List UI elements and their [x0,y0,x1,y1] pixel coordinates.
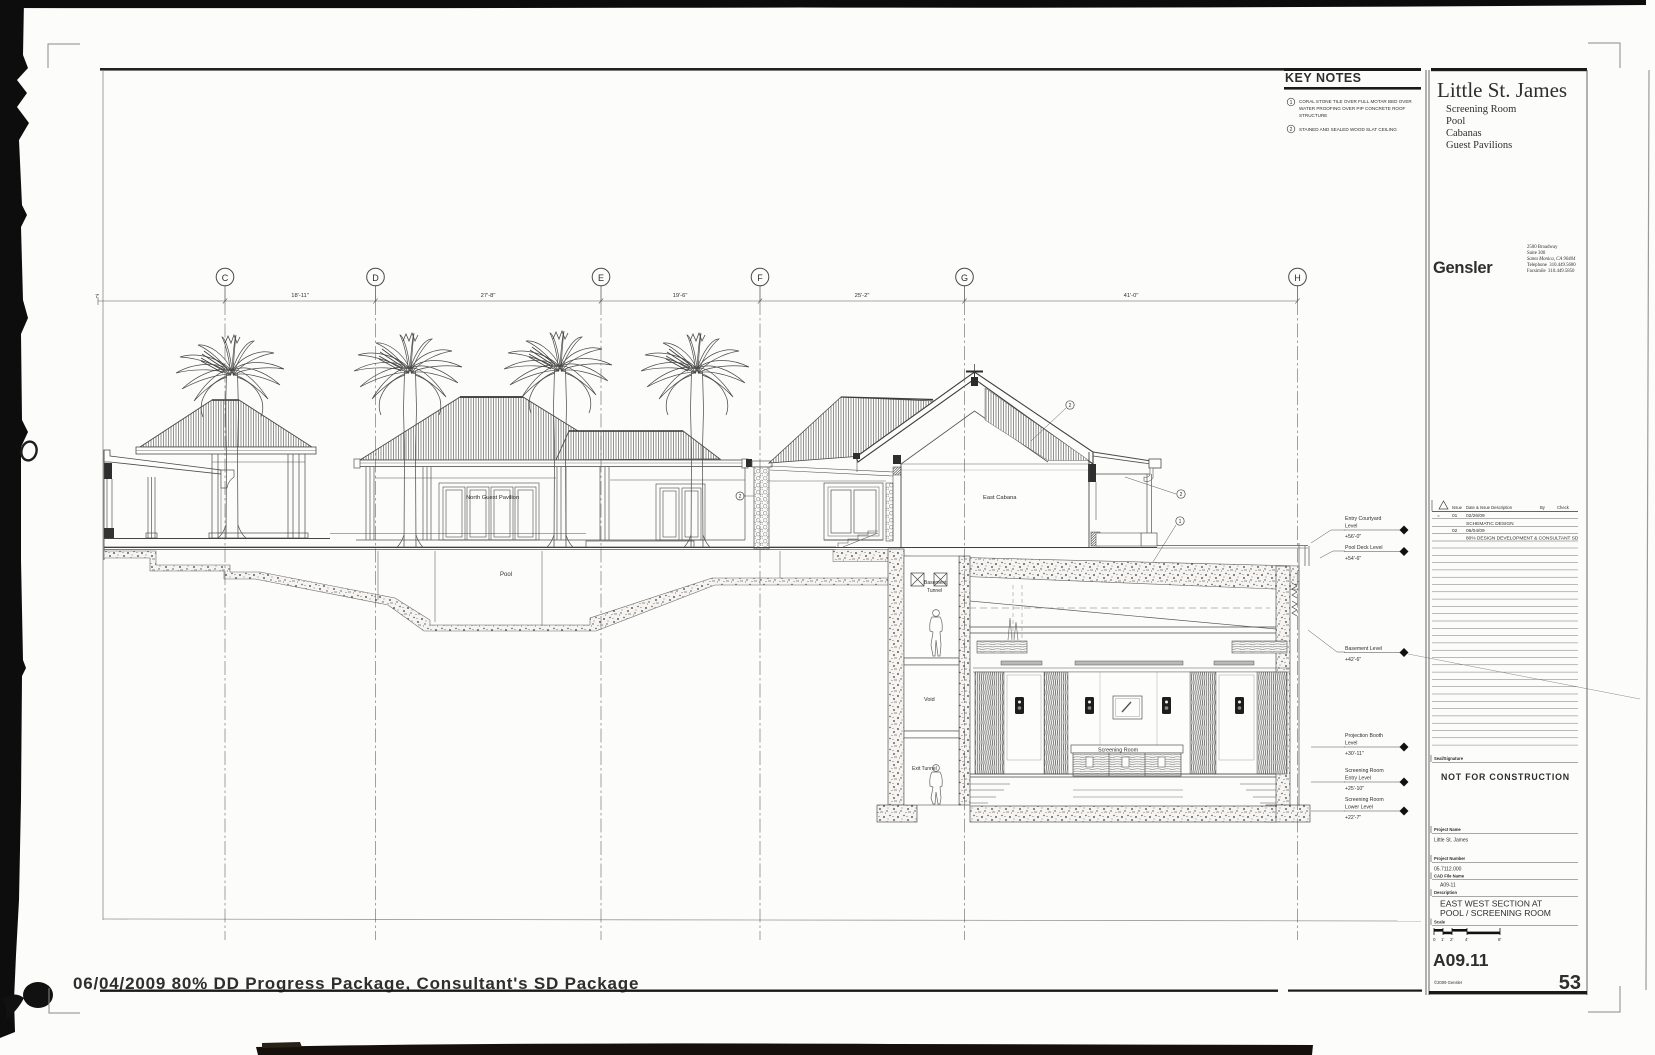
svg-text:Entry Level: Entry Level [1345,776,1371,782]
svg-text:+54'-6": +54'-6" [1345,556,1361,562]
svg-text:Entry Courtyard: Entry Courtyard [1345,516,1381,522]
svg-text:Basement Level: Basement Level [1345,646,1382,652]
svg-text:Santa Monica, CA 90404: Santa Monica, CA 90404 [1527,257,1576,262]
svg-text:Level: Level [1345,524,1357,530]
svg-text:D: D [372,273,379,283]
svg-text:02/26/09: 02/26/09 [1466,513,1485,519]
svg-text:Tunnel: Tunnel [927,588,942,594]
svg-text:KEY NOTES: KEY NOTES [1285,71,1362,85]
svg-text:01: 01 [1452,513,1458,519]
svg-text:STAINED AND SEALED WOOD SLAT C: STAINED AND SEALED WOOD SLAT CEILING [1299,127,1397,132]
svg-text:Level: Level [1345,741,1357,747]
svg-text:2500 Broadway: 2500 Broadway [1527,245,1558,250]
svg-text:Screening Room: Screening Room [1345,768,1384,774]
svg-text:Pool: Pool [500,572,512,578]
svg-text:Little St. James: Little St. James [1437,78,1567,102]
svg-text:Pool: Pool [1446,116,1465,127]
svg-text:Issue: Issue [1452,505,1463,510]
svg-text:Little St. James: Little St. James [1434,838,1469,844]
svg-text:Project Name: Project Name [1434,827,1461,832]
svg-text:Description: Description [1434,890,1457,895]
svg-text:North Guest Pavilion: North Guest Pavilion [466,495,519,501]
svg-text:05.7112.000: 05.7112.000 [1434,867,1462,873]
svg-text:2: 2 [739,494,742,500]
svg-text:+42'-6": +42'-6" [1345,657,1361,663]
svg-text:E: E [598,273,604,283]
svg-text:G: G [961,273,968,283]
svg-text:POOL / SCREENING ROOM: POOL / SCREENING ROOM [1440,908,1551,918]
svg-text:7': 7' [95,294,99,300]
svg-text:18'-11": 18'-11" [291,293,309,299]
svg-text:2': 2' [1450,937,1454,942]
svg-text:19'-6": 19'-6" [673,293,688,299]
svg-text:Seal/Signature: Seal/Signature [1434,756,1464,761]
svg-text:Lower Level: Lower Level [1345,805,1373,811]
svg-text:1': 1' [1441,937,1445,942]
svg-text:A09.11: A09.11 [1433,950,1489,970]
svg-text:East Cabana: East Cabana [983,495,1017,501]
svg-text:+56'-0": +56'-0" [1345,534,1361,540]
svg-text:H: H [1294,273,1301,283]
svg-text:WATER PROOFING OVER PIP CONCRE: WATER PROOFING OVER PIP CONCRETE ROOF [1299,106,1406,111]
svg-text:Projection Booth: Projection Booth [1345,733,1383,739]
svg-text:Gensler: Gensler [1433,259,1493,277]
svg-text:+25'-10": +25'-10" [1345,786,1364,792]
svg-text:Facsimile 310.449.5850: Facsimile 310.449.5850 [1527,269,1575,274]
svg-text:1: 1 [1290,100,1293,106]
svg-text:EAST WEST SECTION AT: EAST WEST SECTION AT [1440,899,1543,909]
svg-text:Project Number: Project Number [1434,856,1466,861]
svg-text:+30'-11": +30'-11" [1345,751,1364,757]
svg-text:NOT FOR CONSTRUCTION: NOT FOR CONSTRUCTION [1441,772,1570,782]
svg-text:Pool Deck Level: Pool Deck Level [1345,545,1383,551]
svg-text:©2009 Gensler: ©2009 Gensler [1434,980,1463,985]
svg-text:SCHEMATIC DESIGN: SCHEMATIC DESIGN [1466,521,1514,527]
svg-text:41'-0": 41'-0" [1124,293,1139,299]
svg-text:2: 2 [1290,127,1293,133]
svg-text:06/04/09: 06/04/09 [1466,528,1485,534]
svg-text:F: F [757,273,763,283]
svg-text:C: C [222,273,229,283]
svg-text:Basement: Basement [924,580,947,586]
svg-text:+22'-7": +22'-7" [1345,815,1361,821]
svg-text:Telephone 310.449.5600: Telephone 310.449.5600 [1527,263,1576,268]
svg-text:Screening Room: Screening Room [1098,748,1139,754]
svg-text:Screening Room: Screening Room [1345,797,1384,803]
svg-text:8': 8' [1498,937,1502,942]
svg-text:Void: Void [924,697,935,703]
svg-text:Check: Check [1557,505,1570,510]
svg-text:25'-2": 25'-2" [855,293,870,299]
svg-text:80% DESIGN DEVELOPMENT & CONSU: 80% DESIGN DEVELOPMENT & CONSULTANT SD [1466,536,1579,542]
svg-text:2: 2 [1069,403,1072,409]
svg-text:A09-11: A09-11 [1440,883,1456,889]
svg-text:53: 53 [1559,972,1581,994]
svg-text:1: 1 [1179,519,1182,525]
svg-text:Date & Issue Description: Date & Issue Description [1466,505,1513,510]
svg-text:27'-8": 27'-8" [481,293,496,299]
svg-text:4': 4' [1465,937,1469,942]
svg-text:CAD File Name: CAD File Name [1434,874,1465,879]
svg-text:Scale: Scale [1434,920,1446,925]
svg-text:02: 02 [1452,528,1458,534]
svg-text:Suite 300: Suite 300 [1527,251,1546,256]
svg-text:Screening Room: Screening Room [1446,104,1516,115]
svg-text:Cabanas: Cabanas [1446,128,1482,139]
svg-text:CORAL STONE TILE OVER FULL MOT: CORAL STONE TILE OVER FULL MOTAR BED OVE… [1299,99,1412,104]
svg-text:STRUCTURE: STRUCTURE [1299,113,1327,118]
svg-text:Guest Pavilions: Guest Pavilions [1446,140,1512,151]
svg-text:2: 2 [1180,492,1183,498]
